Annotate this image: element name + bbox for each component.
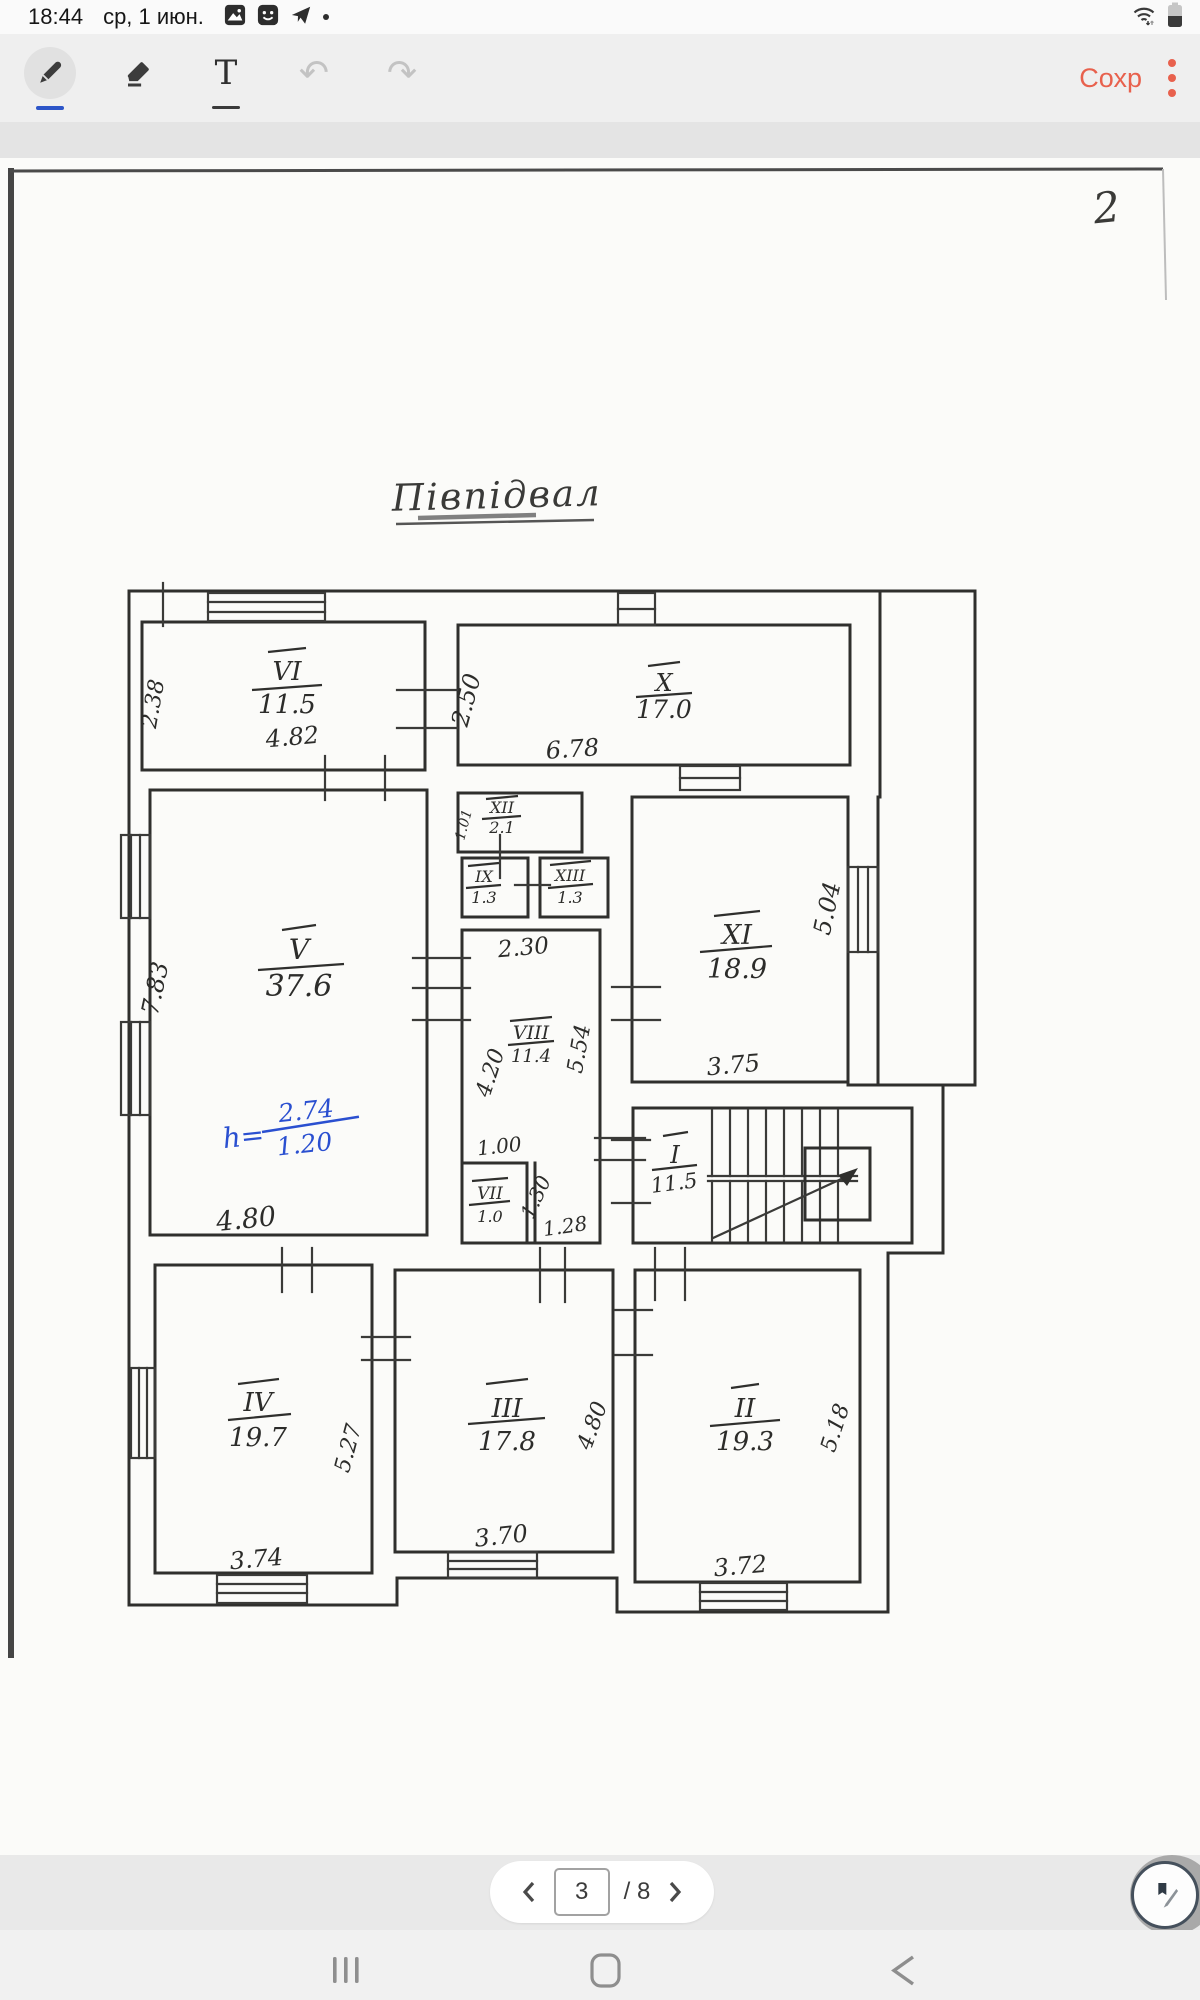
dim-viii-height-right: 5.54 (563, 1023, 596, 1076)
note-lead: h= (221, 1118, 266, 1155)
dim-vi-width: 4.82 (263, 721, 320, 754)
room-ix-number: IX (474, 867, 493, 886)
room-v (150, 790, 427, 1235)
room-viii-area: 11.4 (511, 1046, 551, 1067)
dim-vii-diagonal: 1.30 (515, 1172, 556, 1223)
dim-hall-width: 2.30 (496, 933, 550, 963)
dim-xi-height: 5.04 (808, 879, 846, 937)
room-x-number: X (653, 669, 673, 697)
title-underline-2 (418, 515, 536, 518)
floating-edit-button[interactable] (1130, 1855, 1200, 1935)
dim-iv-width: 3.74 (228, 1543, 284, 1576)
scan-left-edge (8, 168, 14, 1658)
room-vi-area: 11.5 (258, 690, 316, 720)
overflow-menu-button[interactable] (1168, 59, 1176, 97)
room-v-number: V (289, 933, 312, 966)
room-i-number: I (669, 1141, 680, 1169)
room-xii-area: 2.1 (488, 818, 514, 837)
battery-icon (1164, 1, 1186, 34)
note-denominator: 1.20 (275, 1127, 333, 1162)
staircase (708, 1110, 870, 1241)
dim-ii-height: 5.18 (816, 1401, 855, 1455)
emoji-notification-icon (257, 4, 279, 31)
text-tool-icon: T (215, 56, 238, 90)
room-v-area: 37.6 (266, 969, 333, 1004)
pen-tool-active-underline (36, 106, 64, 110)
room-xi-number: XI (720, 920, 753, 951)
dim-v-width: 4.80 (214, 1201, 278, 1238)
room-vi-number: VI (272, 657, 302, 687)
window-symbols (121, 593, 878, 1610)
dim-x-height: 2.50 (446, 670, 487, 730)
dim-x-width: 6.78 (545, 733, 600, 765)
status-bar: 18:44 ср, 1 июн. (0, 0, 1200, 34)
room-viii-number: VIII (513, 1022, 550, 1044)
room-iv-area: 19.7 (229, 1423, 287, 1453)
room-xiii-area: 1.3 (557, 888, 582, 907)
plan-title: Півпідвал (390, 471, 602, 520)
dim-viii-height-left: 4.20 (471, 1046, 510, 1101)
floor-plan-drawing: 2 Півпідвал (0, 158, 1200, 1855)
room-iii-area: 17.8 (478, 1427, 536, 1457)
room-xiii-number: XIII (553, 866, 586, 885)
room-i-area: 11.5 (649, 1168, 698, 1198)
undo-button[interactable]: ↶ (286, 46, 342, 110)
redo-icon: ↷ (387, 55, 417, 91)
pagination-bar: 3 / 8 (0, 1855, 1200, 1930)
recents-button[interactable] (333, 1957, 359, 1983)
text-tool-underline (212, 106, 240, 109)
pen-tool-button[interactable] (22, 46, 78, 110)
room-xii-number: XII (488, 798, 515, 817)
eraser-icon (123, 58, 153, 88)
document-canvas[interactable]: 2 Півпідвал (0, 158, 1200, 1855)
dim-ii-width: 3.72 (712, 1550, 768, 1583)
room-ii-area: 19.3 (716, 1427, 774, 1457)
notification-icons (224, 4, 329, 31)
pen-tool-selected-circle (24, 47, 76, 99)
gallery-notification-icon (224, 4, 246, 31)
eraser-tool-button[interactable] (110, 46, 166, 110)
previous-page-button[interactable] (518, 1877, 540, 1907)
home-button[interactable] (592, 1955, 619, 1986)
stair-direction-line (713, 1175, 850, 1238)
edit-fab-icon (1149, 1879, 1181, 1911)
app-screen: 18:44 ср, 1 июн. (0, 0, 1200, 2000)
clock: 18:44 (28, 4, 83, 30)
room-iv-number: IV (242, 1388, 274, 1418)
page-navigator: 3 / 8 (490, 1861, 714, 1923)
redo-button[interactable]: ↷ (374, 46, 430, 110)
room-vii-area: 1.0 (477, 1207, 502, 1226)
blue-height-note: h= 2.74 1.20 (219, 1091, 362, 1167)
room-iv (155, 1265, 372, 1573)
text-tool-button[interactable]: T (198, 46, 254, 109)
scan-top-edge (10, 169, 1163, 171)
room-ix-area: 1.3 (471, 888, 496, 907)
room-x-area: 17.0 (636, 695, 692, 724)
save-button[interactable]: Сохр (1079, 63, 1142, 94)
dim-xii-height: 1.01 (452, 808, 476, 842)
dim-iii-width: 3.70 (473, 1519, 529, 1552)
dim-iii-height: 4.80 (572, 1398, 613, 1454)
page-corner-number: 2 (1090, 182, 1123, 234)
page-number-input[interactable]: 3 (554, 1868, 610, 1916)
toolbar-shadow-strip (0, 122, 1200, 158)
system-navigation-bar (0, 1930, 1200, 2000)
pen-icon (36, 59, 64, 87)
room-xi-area: 18.9 (707, 954, 767, 985)
dim-passage-width: 1.00 (476, 1132, 523, 1161)
scan-right-edge (1163, 169, 1166, 300)
annotation-toolbar: T ↶ ↷ Сохр (0, 34, 1200, 122)
dim-v-height: 7.83 (136, 959, 174, 1017)
page-total-label: / 8 (624, 1878, 651, 1906)
next-page-button[interactable] (664, 1877, 686, 1907)
send-notification-icon (290, 4, 312, 31)
room-xii (458, 793, 582, 852)
dim-xi-width: 3.75 (705, 1049, 761, 1082)
title-underline (396, 520, 594, 524)
more-notifications-dot-icon (323, 14, 329, 20)
dim-iv-height: 5.27 (330, 1421, 367, 1475)
room-ii-number: II (734, 1394, 756, 1424)
back-button[interactable] (894, 1957, 913, 1984)
dim-vii-width: 1.28 (541, 1211, 588, 1241)
undo-icon: ↶ (299, 55, 329, 91)
status-date: ср, 1 июн. (103, 4, 204, 30)
wifi-icon (1131, 2, 1157, 33)
